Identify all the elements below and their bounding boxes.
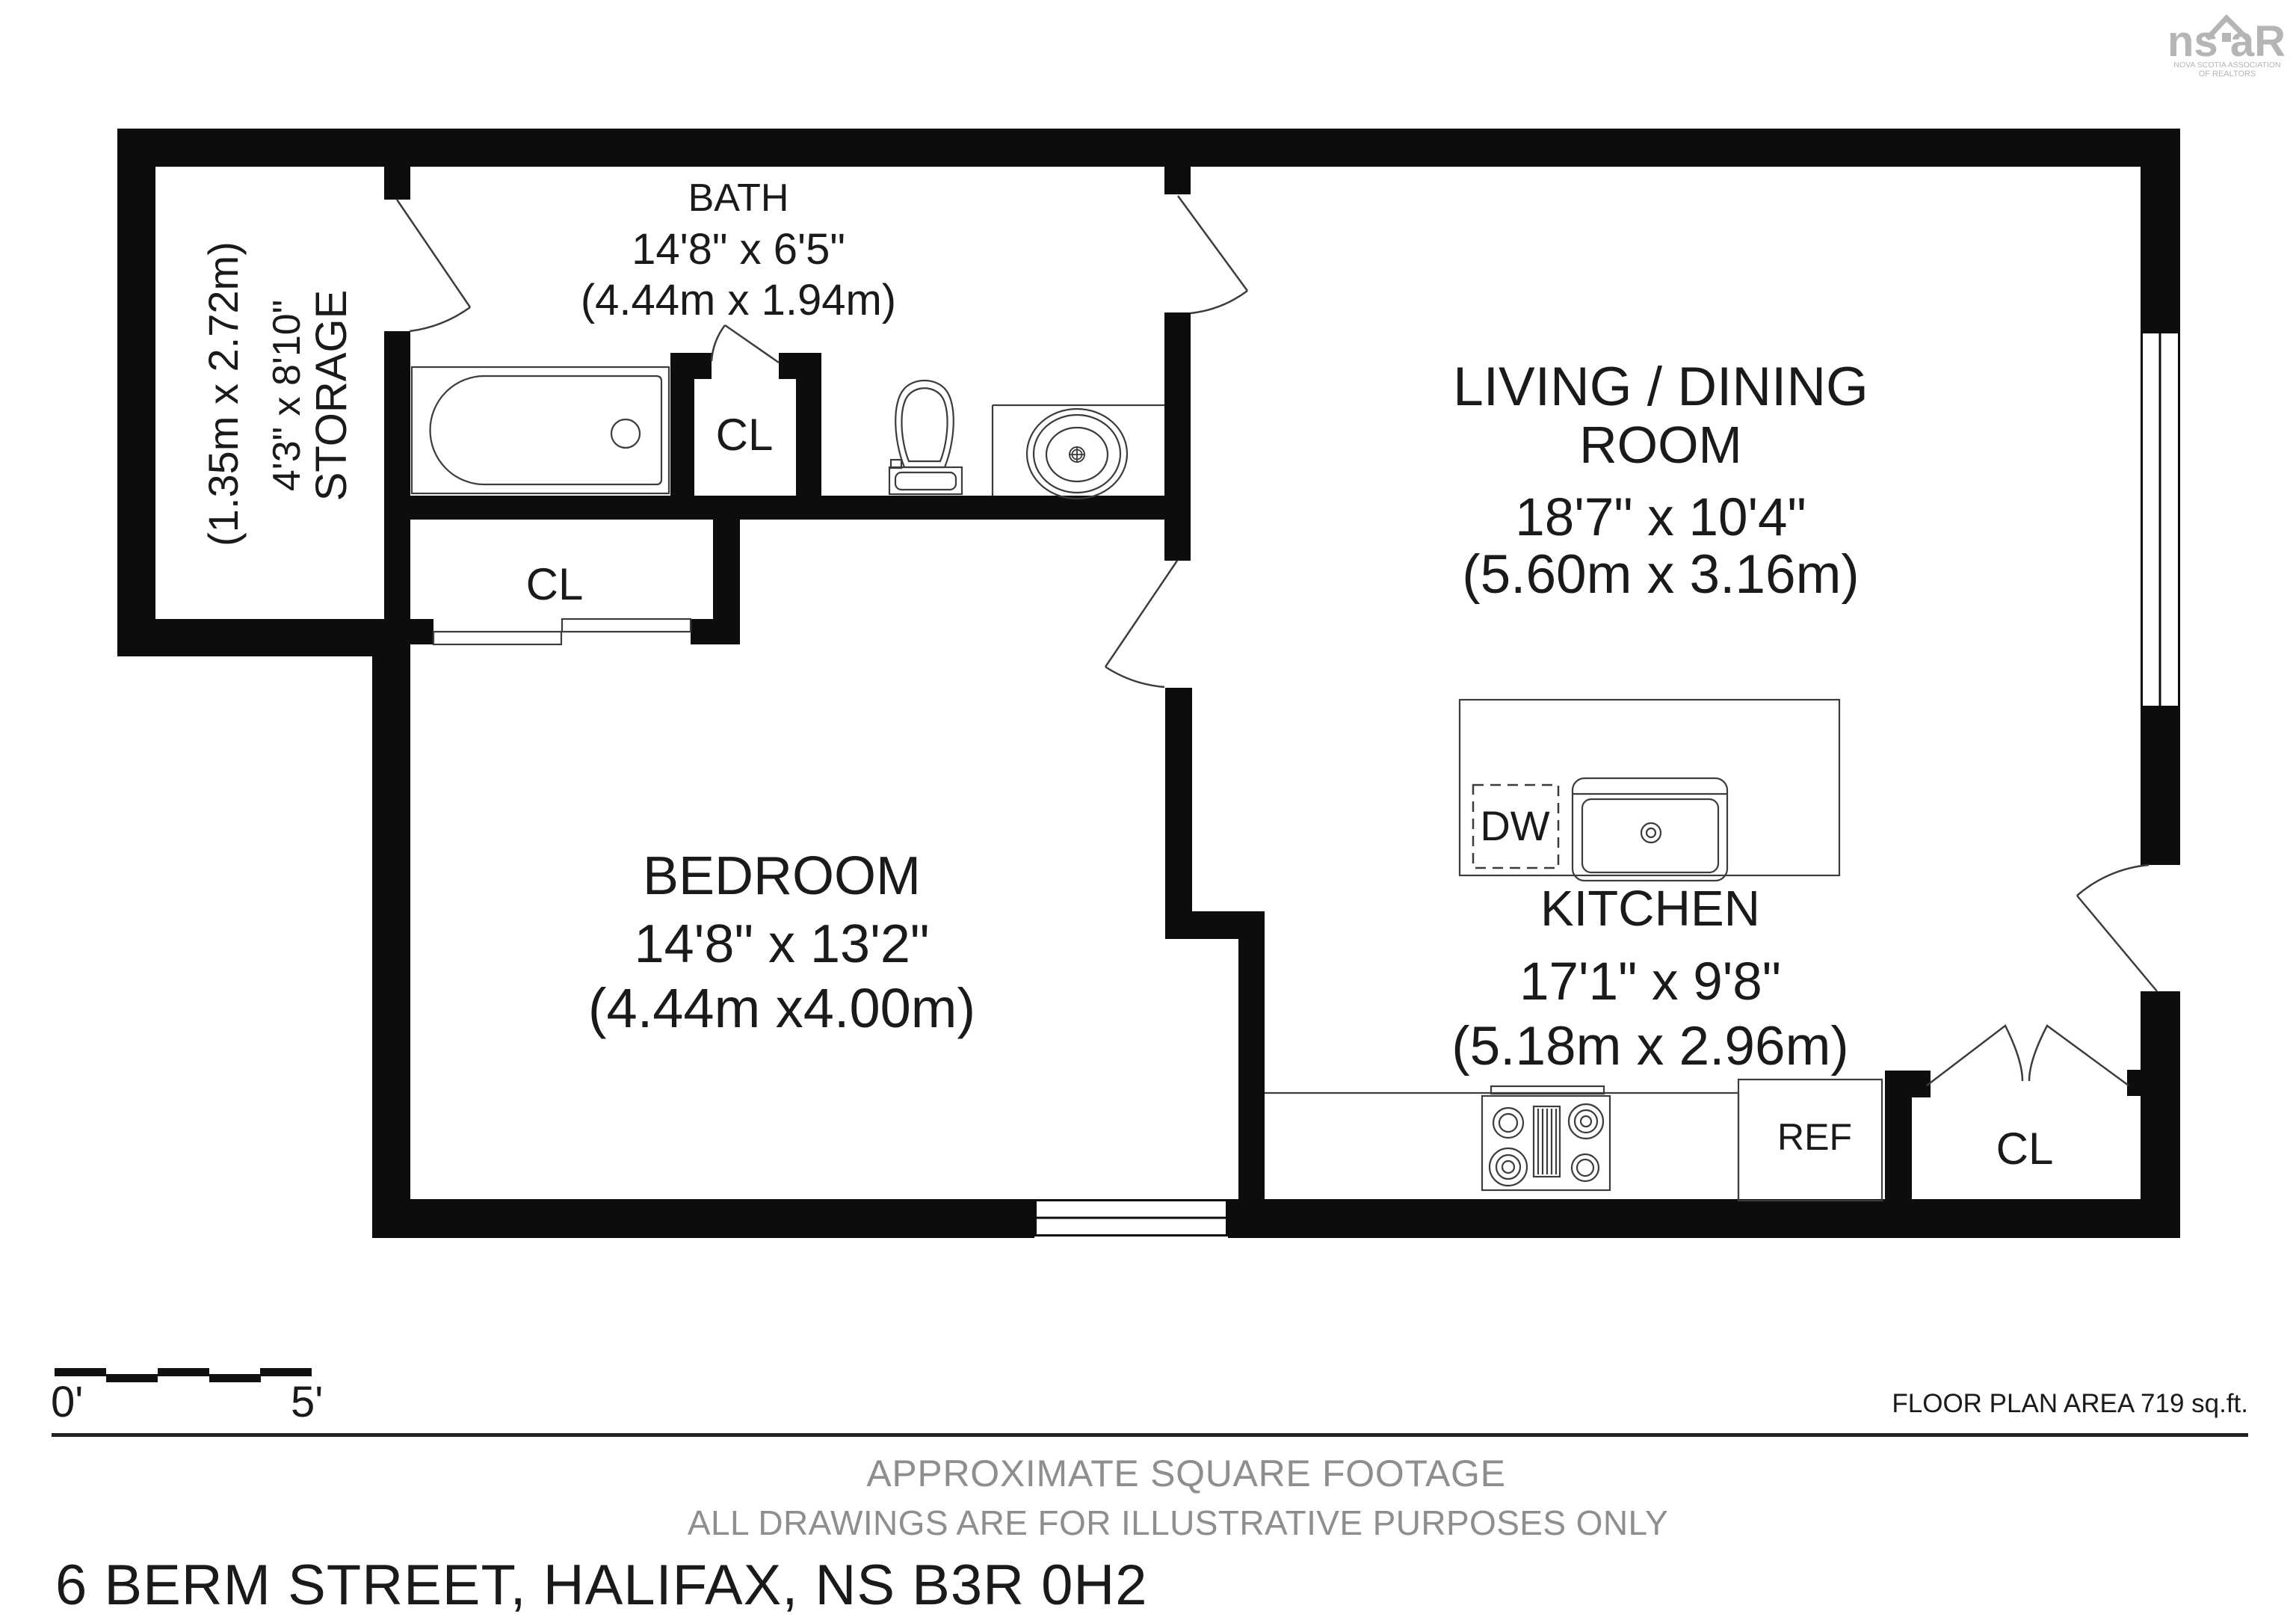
svg-text:4'3" x 8'10": 4'3" x 8'10"	[265, 300, 309, 491]
svg-text:14'8" x 6'5": 14'8" x 6'5"	[632, 225, 845, 274]
svg-text:5': 5'	[291, 1378, 323, 1426]
svg-text:KITCHEN: KITCHEN	[1540, 881, 1760, 937]
svg-text:APPROXIMATE SQUARE FOOTAGE: APPROXIMATE SQUARE FOOTAGE	[866, 1453, 1505, 1494]
svg-text:ns: ns	[2167, 17, 2218, 66]
svg-text:14'8" x 13'2": 14'8" x 13'2"	[635, 914, 930, 974]
svg-text:(1.35m x 2.72m): (1.35m x 2.72m)	[200, 241, 247, 546]
svg-text:DW: DW	[1480, 802, 1549, 849]
svg-text:CL: CL	[1996, 1124, 2054, 1174]
svg-text:(5.60m x 3.16m): (5.60m x 3.16m)	[1462, 544, 1859, 605]
svg-text:ALL DRAWINGS ARE FOR ILLUSTRAT: ALL DRAWINGS ARE FOR ILLUSTRATIVE PURPOS…	[688, 1503, 1668, 1542]
svg-text:NOVA SCOTIA ASSOCIATION: NOVA SCOTIA ASSOCIATION	[2173, 61, 2280, 70]
svg-text:aR: aR	[2230, 17, 2286, 66]
svg-text:STORAGE: STORAGE	[307, 290, 356, 502]
svg-text:(5.18m x 2.96m): (5.18m x 2.96m)	[1451, 1016, 1848, 1077]
svg-text:CL: CL	[716, 410, 774, 460]
svg-text:OF REALTORS: OF REALTORS	[2199, 70, 2256, 78]
svg-text:0': 0'	[51, 1378, 83, 1426]
svg-text:(4.44m x4.00m): (4.44m x4.00m)	[588, 977, 975, 1039]
svg-text:LIVING / DINING: LIVING / DINING	[1453, 357, 1868, 417]
svg-text:REF: REF	[1777, 1116, 1852, 1158]
svg-text:6 BERM STREET, HALIFAX, NS B3R: 6 BERM STREET, HALIFAX, NS B3R 0H2	[55, 1553, 1148, 1617]
svg-text:CL: CL	[526, 559, 584, 609]
svg-text:17'1" x 9'8": 17'1" x 9'8"	[1519, 952, 1781, 1011]
svg-text:FLOOR PLAN AREA 719 sq.ft.: FLOOR PLAN AREA 719 sq.ft.	[1892, 1389, 2248, 1418]
svg-text:(4.44m x 1.94m): (4.44m x 1.94m)	[581, 276, 896, 324]
svg-text:BATH: BATH	[688, 176, 789, 220]
svg-text:ROOM: ROOM	[1579, 416, 1742, 474]
svg-text:BEDROOM: BEDROOM	[643, 846, 921, 906]
svg-text:18'7" x 10'4": 18'7" x 10'4"	[1515, 488, 1806, 547]
